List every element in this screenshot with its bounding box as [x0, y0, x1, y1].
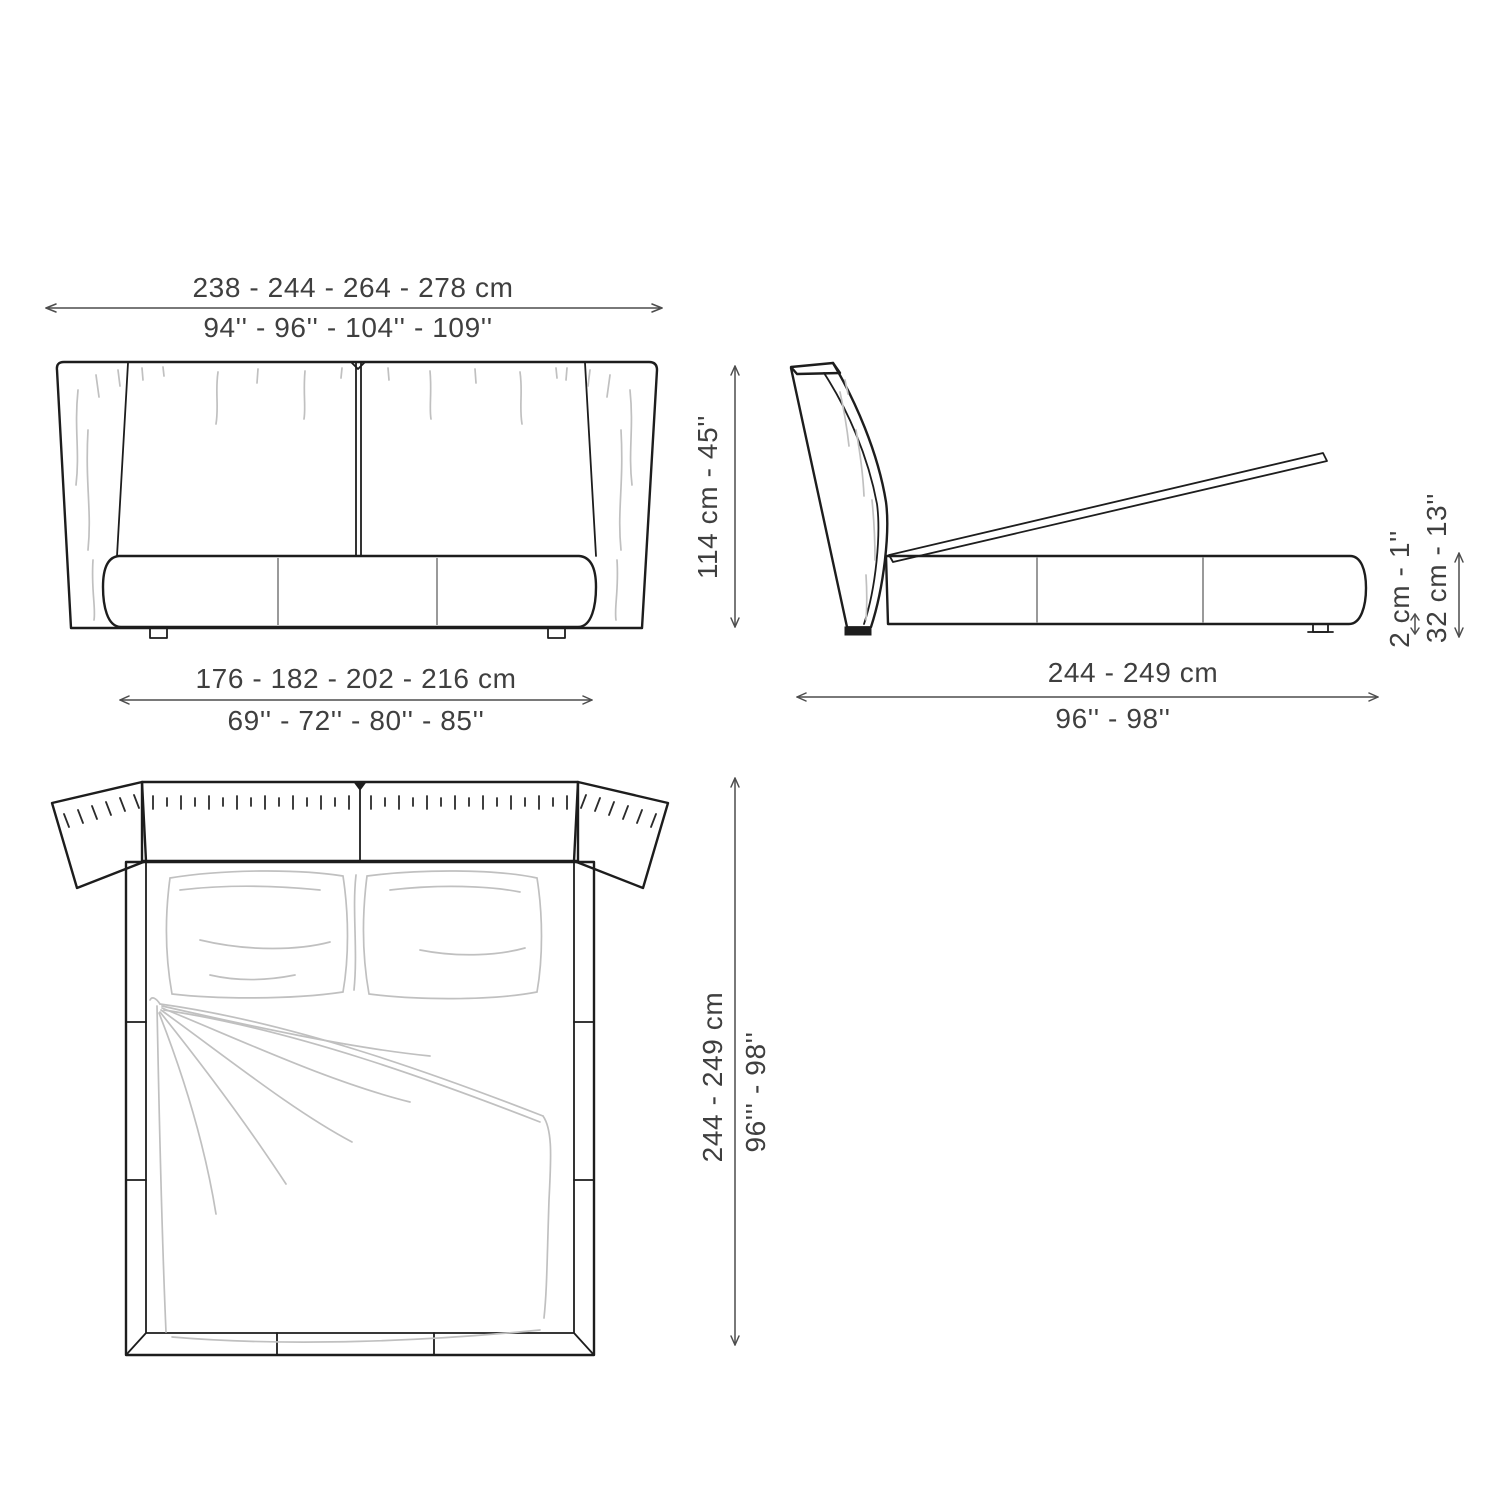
- front-foot-left: [150, 628, 167, 638]
- front-overall-width-cm-label: 238 - 244 - 264 - 278 cm: [192, 272, 513, 304]
- side-view: [791, 363, 1366, 635]
- top-pillows-sketch: [166, 871, 541, 999]
- top-frame-seam-ticks: [126, 1022, 594, 1355]
- top-wing-left: [52, 782, 146, 888]
- front-overall-width-in-label: 94'' - 96'' - 104'' - 109'': [203, 312, 492, 344]
- side-base-seams: [1037, 557, 1203, 623]
- front-base-width-cm-label: 176 - 182 - 202 - 216 cm: [195, 663, 516, 695]
- top-wing-right: [574, 782, 668, 888]
- top-wing-stitch-ticks-right: [581, 795, 656, 827]
- side-depth-dimension: [797, 693, 1378, 701]
- front-wing-seam-left: [117, 363, 128, 556]
- front-height-label: 114 cm - 45'': [692, 415, 724, 579]
- front-foot-right: [548, 628, 565, 638]
- side-floor-clearance-label: 2 cm - 1'': [1384, 530, 1416, 648]
- front-wing-seam-right: [585, 363, 596, 556]
- front-headboard-outline: [57, 362, 657, 628]
- side-storage-base: [886, 556, 1366, 624]
- top-depth-dimension: [731, 778, 739, 1345]
- bed-technical-drawing: [0, 0, 1500, 1500]
- top-view: [52, 782, 668, 1355]
- front-base-slab: [103, 556, 596, 627]
- top-wing-stitch-ticks-left: [64, 795, 139, 827]
- front-overall-width-dimension: [46, 304, 662, 312]
- side-lifted-slat-lid: [889, 453, 1327, 562]
- side-headboard-back-edge: [791, 368, 847, 627]
- bed-technical-drawing-page: 238 - 244 - 264 - 278 cm 94'' - 96'' - 1…: [0, 0, 1500, 1500]
- top-depth-cm-label: 244 - 249 cm: [697, 992, 729, 1163]
- front-center-seam: [356, 363, 361, 556]
- side-upholstery-sketch-lines: [840, 380, 875, 620]
- front-height-dimension: [731, 366, 739, 627]
- side-storage-height-label: 32 cm - 13'': [1421, 493, 1453, 643]
- front-base-width-in-label: 69'' - 72'' - 80'' - 85'': [228, 705, 485, 737]
- front-base-width-dimension: [120, 696, 592, 704]
- front-base-seams: [278, 558, 437, 625]
- top-headboard-center-notch: [354, 782, 366, 790]
- front-view: [57, 362, 657, 638]
- side-depth-cm-label: 244 - 249 cm: [1048, 657, 1219, 689]
- side-headboard-foot: [845, 627, 871, 635]
- front-upholstery-sketch-lines: [76, 367, 632, 620]
- side-headboard-front-inner: [824, 373, 878, 624]
- top-duvet-sketch: [150, 998, 551, 1342]
- side-storage-height-dimension: [1455, 553, 1463, 637]
- side-depth-in-label: 96'' - 98'': [1055, 703, 1170, 735]
- top-depth-in-label: 96''' - 98'': [740, 1031, 772, 1152]
